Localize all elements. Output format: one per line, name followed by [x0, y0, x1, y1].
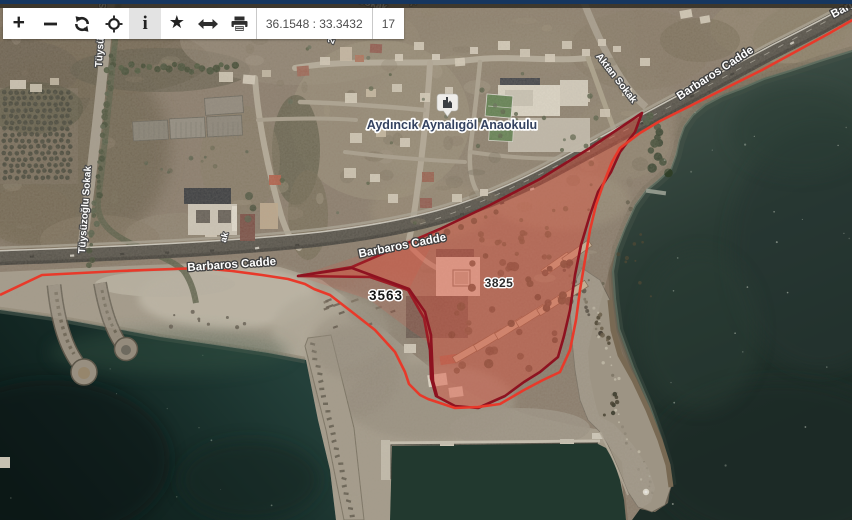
svg-text:3563: 3563: [369, 288, 403, 303]
svg-text:3825: 3825: [485, 276, 514, 290]
svg-text:Aydıncık Aynalıgöl Anaokulu: Aydıncık Aynalıgöl Anaokulu: [367, 118, 537, 132]
